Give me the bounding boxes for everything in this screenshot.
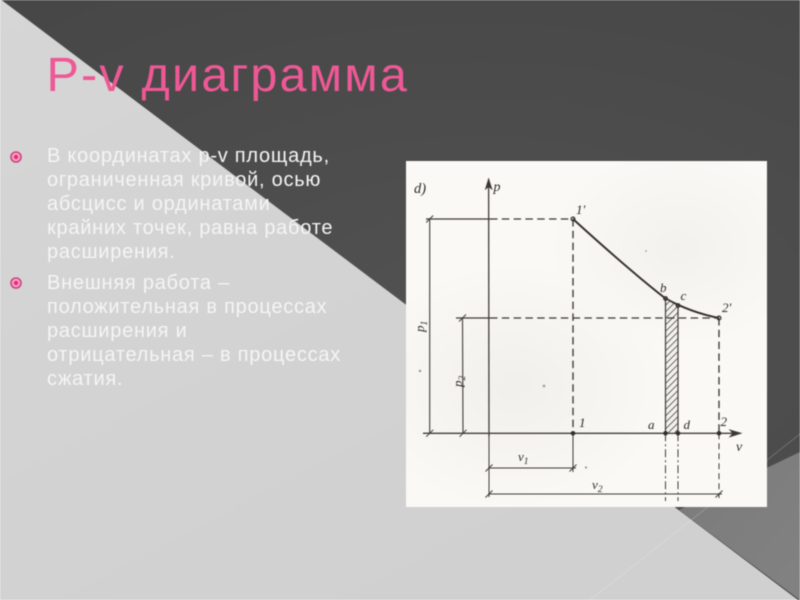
svg-text:2: 2 (721, 414, 728, 429)
svg-text:d: d (684, 417, 691, 432)
svg-text:1: 1 (579, 415, 586, 430)
svg-text:v: v (736, 440, 743, 455)
svg-text:p: p (493, 180, 501, 195)
svg-text:p1: p1 (412, 321, 430, 333)
svg-text:v2: v2 (592, 477, 603, 495)
svg-text:v1: v1 (518, 449, 529, 467)
svg-text:c: c (681, 288, 687, 303)
svg-text:p2: p2 (450, 376, 468, 389)
svg-text:2': 2' (722, 300, 732, 315)
svg-text:1': 1' (576, 202, 586, 217)
svg-text:b: b (660, 280, 667, 295)
svg-text:d): d) (414, 181, 426, 197)
svg-text:a: a (648, 417, 655, 432)
